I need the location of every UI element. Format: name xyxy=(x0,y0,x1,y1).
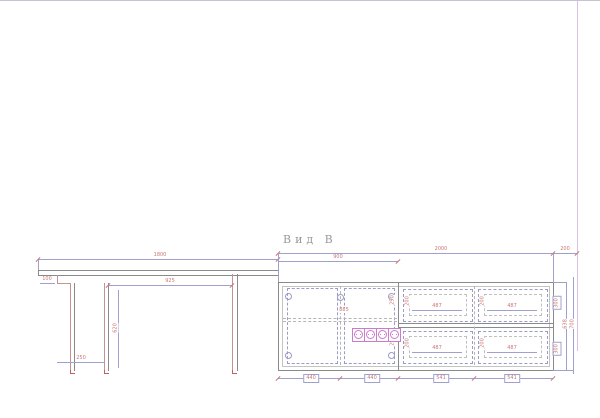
drawer-width-label: 487 xyxy=(506,304,518,309)
desk-width-label: 1800 xyxy=(153,253,168,258)
desk-left-step-top xyxy=(57,283,71,284)
desk-pedestal-left-panel-outer xyxy=(70,283,71,371)
drawer-height-label: 200 xyxy=(406,296,411,306)
desk-pedestal-dimension-line xyxy=(57,362,104,363)
drawer-col2-width-boxed-label: 541 xyxy=(504,374,520,383)
socket-icon xyxy=(365,329,377,341)
door-section-dimension-line xyxy=(278,261,398,262)
socket-icon xyxy=(353,329,365,341)
drawer-height-label: 200 xyxy=(481,296,486,306)
view-title: Вид В xyxy=(283,233,337,246)
door1-width-boxed-label: 440 xyxy=(303,374,319,383)
floor-datum-mark xyxy=(70,370,75,374)
door-section-label: 900 xyxy=(332,255,344,260)
desk-width-dimension-line xyxy=(38,259,278,260)
cabinet-height-outer-label: 700 xyxy=(571,319,576,329)
cabinet-height-ext-bottom xyxy=(553,370,573,371)
door-left-front xyxy=(287,288,338,364)
desk-overhang-label: 100 xyxy=(41,277,53,282)
desk-right-support-inner xyxy=(237,274,238,371)
drawer-width-label: 487 xyxy=(506,346,518,351)
side-bottom-boxed-label: 300 xyxy=(553,342,562,356)
drawer-width-dim-line xyxy=(412,352,462,353)
drawer-row-divider-bottom xyxy=(398,327,553,328)
desk-height-label: 620 xyxy=(114,323,119,333)
drawer-col1-width-boxed-label: 541 xyxy=(433,374,449,383)
drawer-height-label: 200 xyxy=(481,338,486,348)
desk-right-support-outer xyxy=(232,274,233,371)
wall-gap-label: 200 xyxy=(559,247,571,252)
desk-pedestal-right-panel-outer xyxy=(104,283,105,371)
desk-knee-label: 925 xyxy=(164,279,176,284)
drawer-width-dim-line xyxy=(487,310,537,311)
door2-width-boxed-label: 440 xyxy=(364,374,380,383)
side-top-boxed-label: 300 xyxy=(553,296,562,310)
divider-height-top-label: 290 xyxy=(391,295,396,305)
cabinet-ext-right xyxy=(553,253,554,282)
desk-left-step-line xyxy=(57,275,58,283)
cad-drawing-canvas: Вид В 1800 100 925 620 250 885 290 290 xyxy=(0,0,600,418)
cabinet-ext-left xyxy=(278,253,279,282)
desk-width-ext-left xyxy=(38,259,39,270)
desk-top-panel xyxy=(38,270,279,276)
desk-pedestal-right-panel-inner xyxy=(108,283,109,371)
socket-icon xyxy=(389,329,400,341)
hinge-icon xyxy=(388,352,395,359)
socket-icon xyxy=(377,329,389,341)
drawer-row-divider-top xyxy=(398,323,553,324)
door-right-front xyxy=(344,288,395,364)
hinge-icon xyxy=(285,293,292,300)
hinge-icon xyxy=(285,352,292,359)
dim-tick xyxy=(551,376,556,381)
desk-pedestal-label: 250 xyxy=(75,356,87,361)
shelf-width-label: 885 xyxy=(338,308,350,313)
hinge-icon xyxy=(337,294,344,301)
floor-datum-mark xyxy=(104,370,109,374)
wall-right-line xyxy=(577,0,578,351)
door-shelf-line-2 xyxy=(283,321,397,322)
drawer-height-label: 200 xyxy=(406,338,411,348)
drawer-width-dim-line xyxy=(412,310,462,311)
cabinet-section-divider xyxy=(398,282,399,370)
cabinet-height-inner-label: 638 xyxy=(564,319,569,329)
cabinet-width-dimension-line xyxy=(278,253,577,254)
dim-tick xyxy=(396,259,401,264)
drawer-width-label: 487 xyxy=(431,346,443,351)
socket-strip-icon xyxy=(352,328,401,342)
desk-overhang-dimension-line xyxy=(40,283,55,284)
desk-knee-dimension-line xyxy=(108,285,232,286)
cabinet-height-ext-top xyxy=(553,282,566,283)
drawer-column-divider xyxy=(474,286,475,365)
drawer-width-label: 487 xyxy=(431,304,443,309)
floor-line xyxy=(0,0,600,1)
floor-datum-mark xyxy=(232,370,237,374)
drawer-width-dim-line xyxy=(487,352,537,353)
cabinet-width-label: 2000 xyxy=(434,247,449,252)
door-shelf-line-1 xyxy=(283,318,397,319)
